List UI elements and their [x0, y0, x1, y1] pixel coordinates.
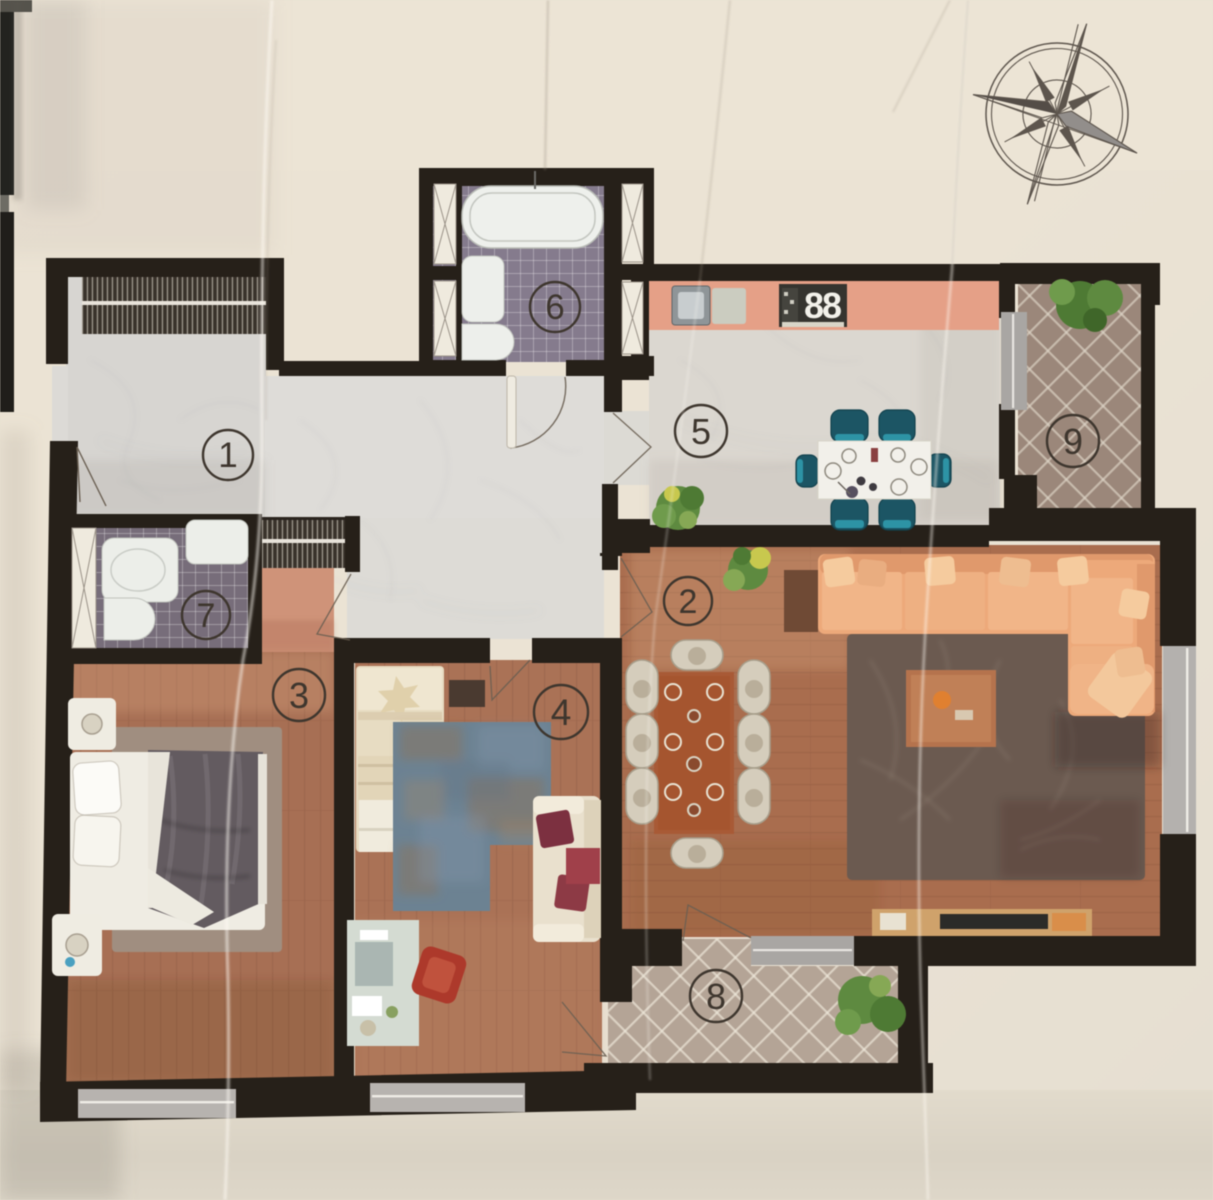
svg-text:2: 2	[679, 583, 698, 621]
svg-text:4: 4	[551, 692, 572, 733]
svg-text:8: 8	[706, 976, 726, 1017]
svg-text:7: 7	[197, 597, 216, 635]
svg-text:3: 3	[289, 675, 309, 716]
svg-text:9: 9	[1063, 421, 1083, 462]
svg-text:5: 5	[691, 411, 711, 452]
svg-text:88: 88	[804, 285, 841, 326]
svg-text:1: 1	[218, 436, 237, 475]
svg-text:6: 6	[545, 288, 564, 327]
